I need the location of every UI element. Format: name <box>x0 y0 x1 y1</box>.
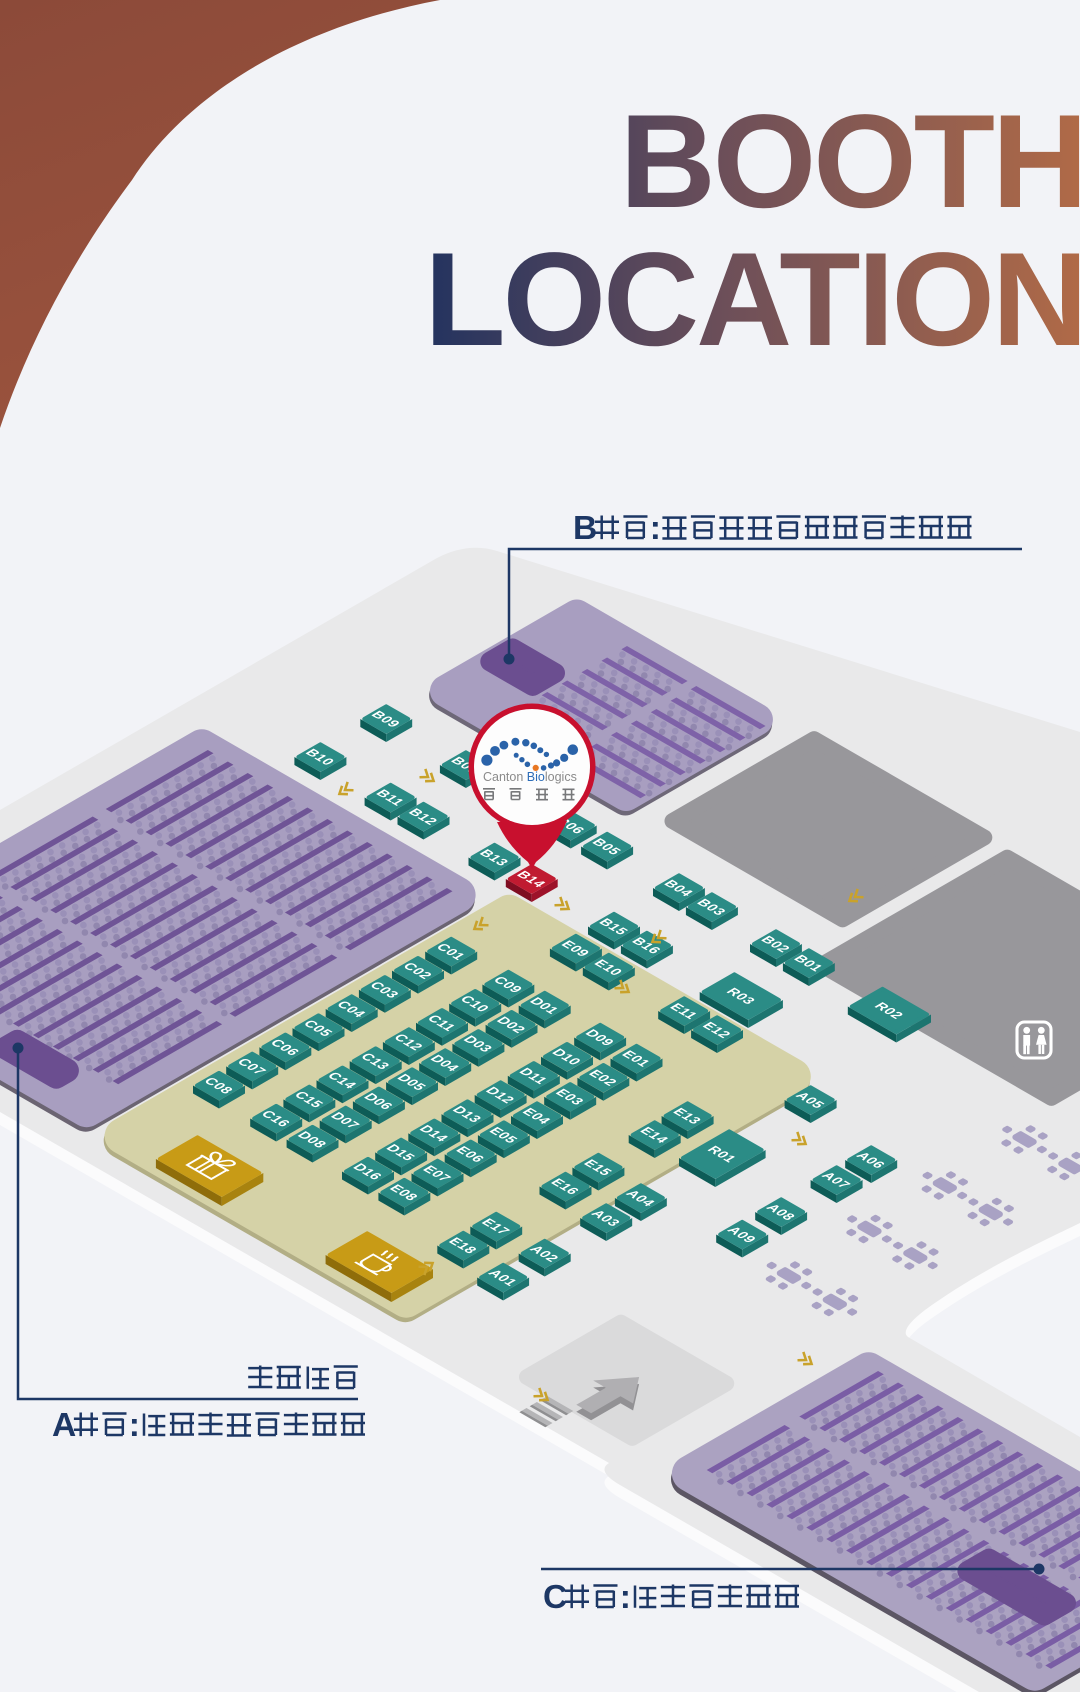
svg-text:LOCATION: LOCATION <box>424 226 1080 374</box>
svg-text:A: A <box>52 1407 76 1444</box>
svg-text:C: C <box>543 1579 567 1616</box>
svg-text:Canton Biologics: Canton Biologics <box>483 770 577 784</box>
svg-text::: : <box>650 510 661 547</box>
svg-text:B: B <box>573 510 597 547</box>
svg-text::: : <box>620 1579 631 1616</box>
svg-text:BOOTH: BOOTH <box>620 88 1080 236</box>
svg-text::: : <box>129 1407 140 1444</box>
